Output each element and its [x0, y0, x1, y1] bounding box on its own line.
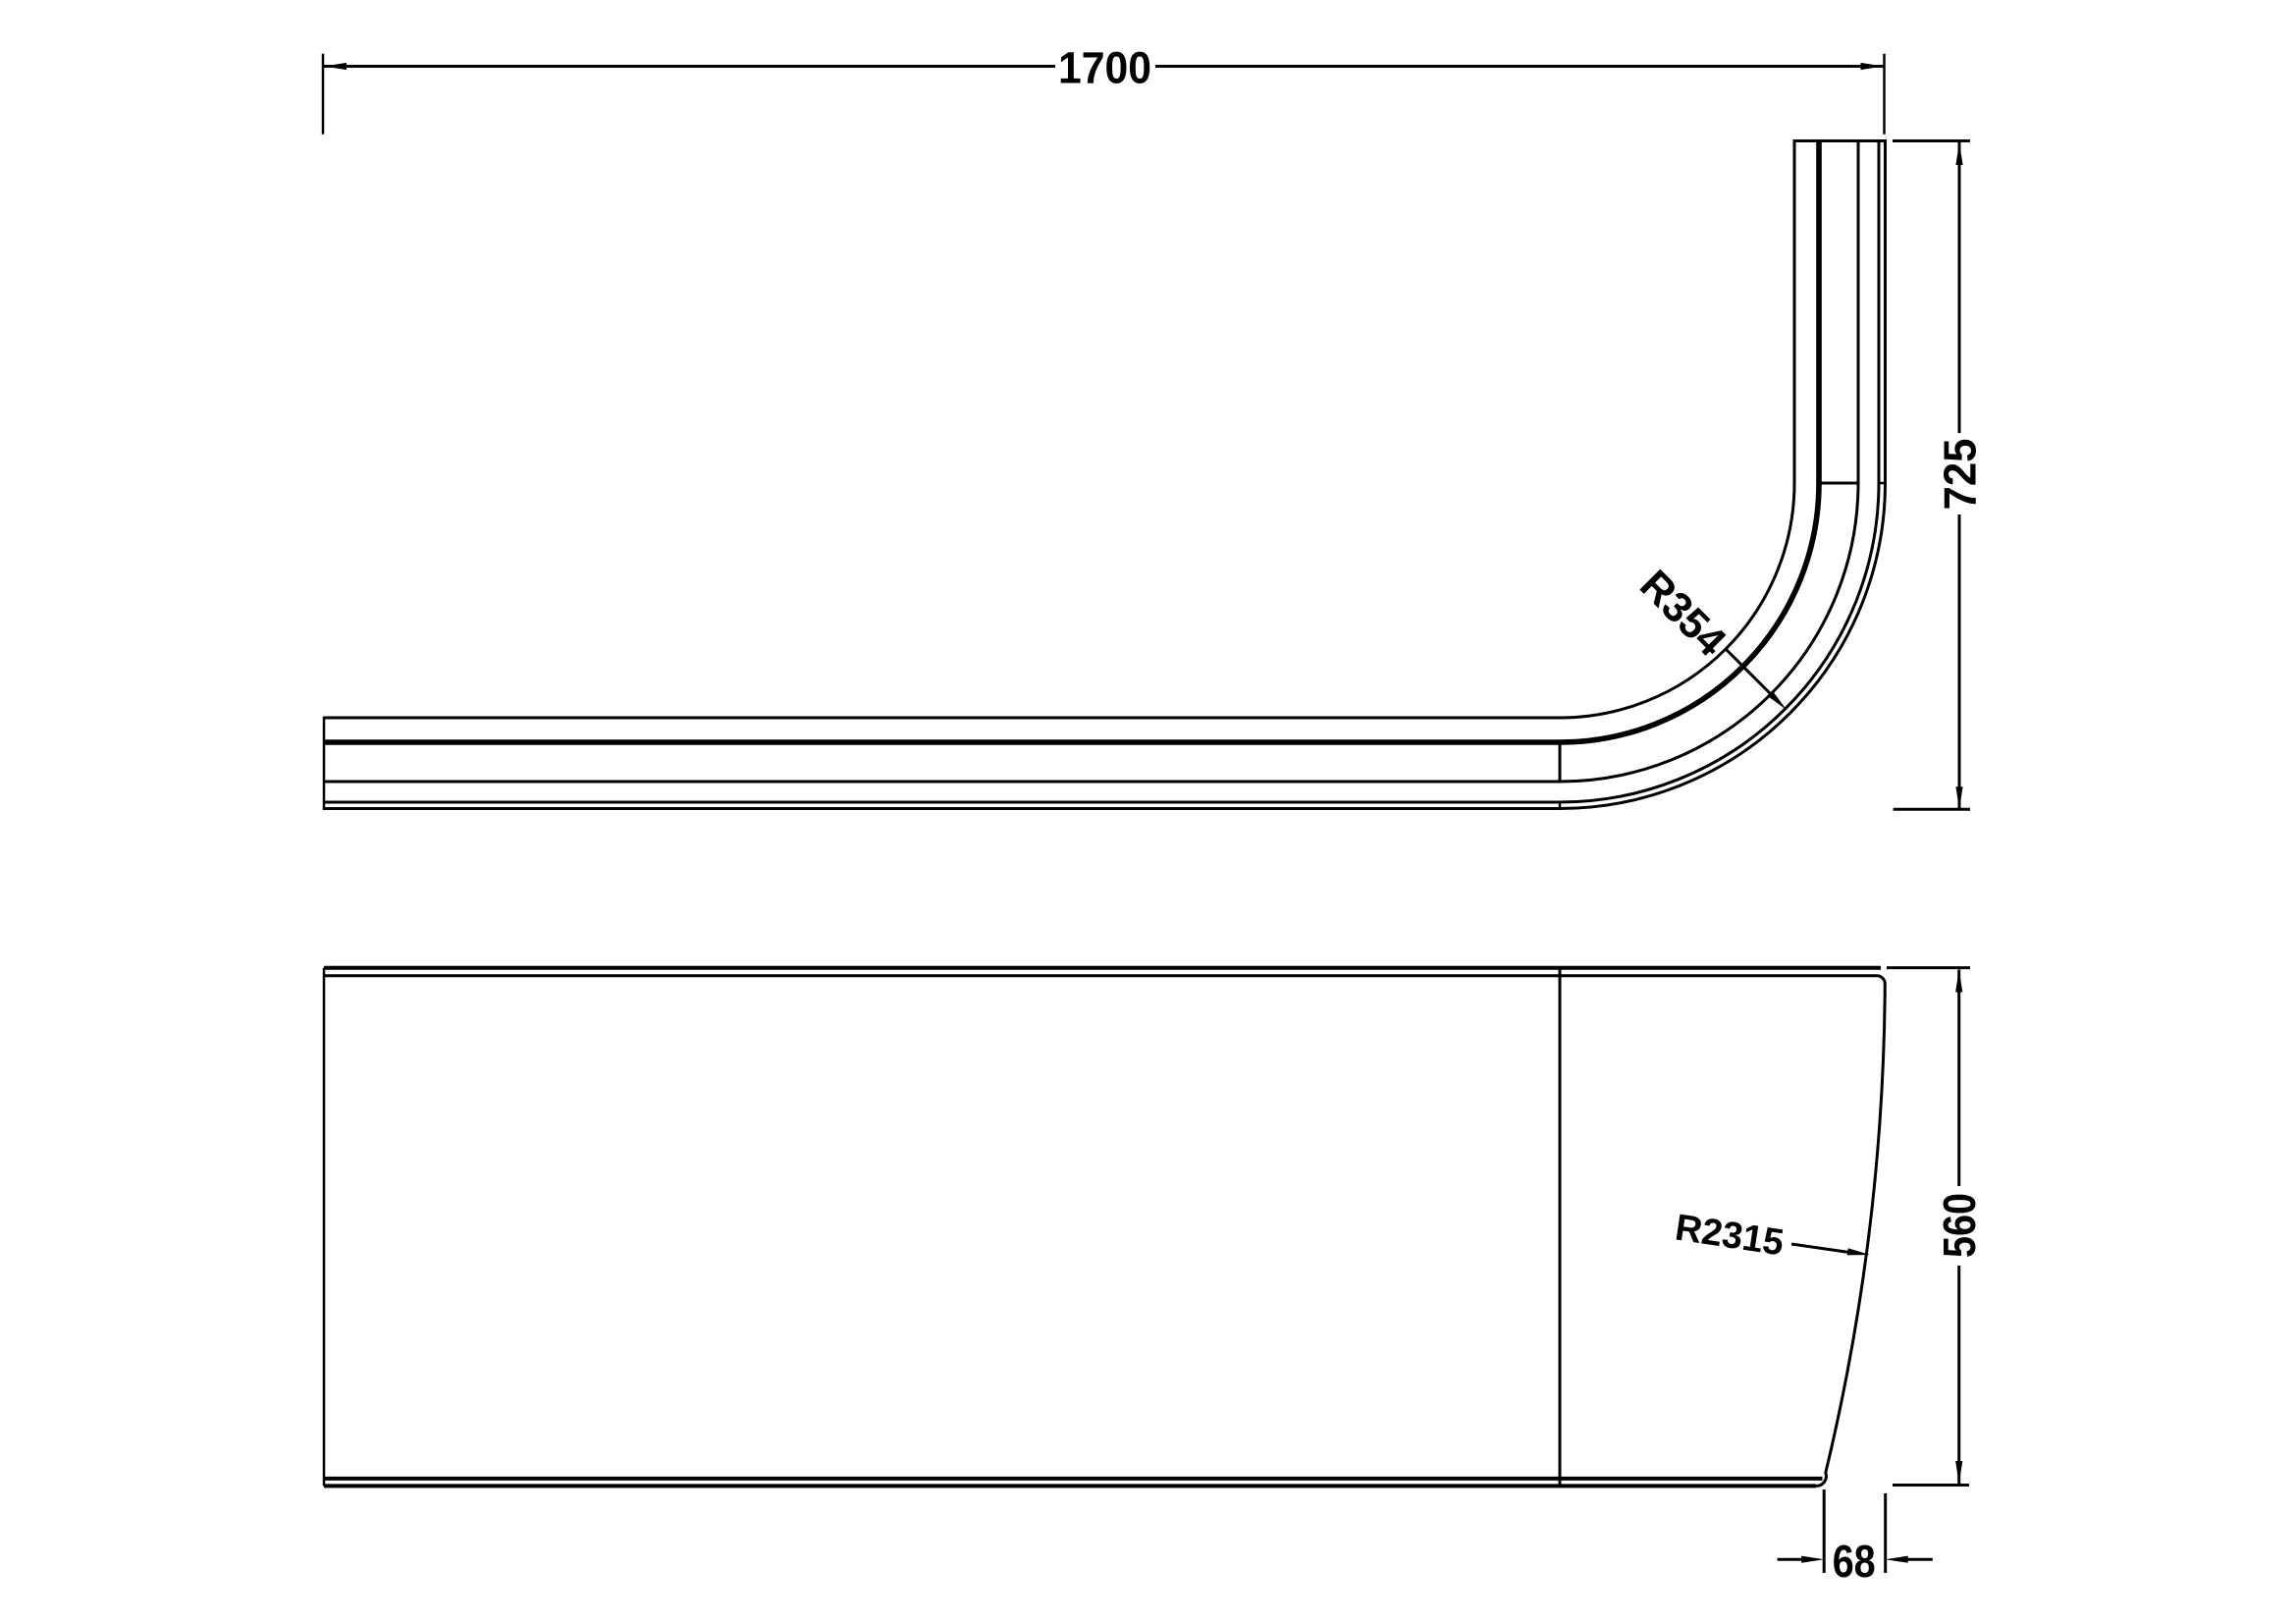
svg-text:68: 68: [1833, 1536, 1876, 1587]
svg-text:560: 560: [1934, 1193, 1985, 1258]
svg-text:725: 725: [1935, 439, 1986, 511]
svg-text:1700: 1700: [1058, 43, 1151, 93]
